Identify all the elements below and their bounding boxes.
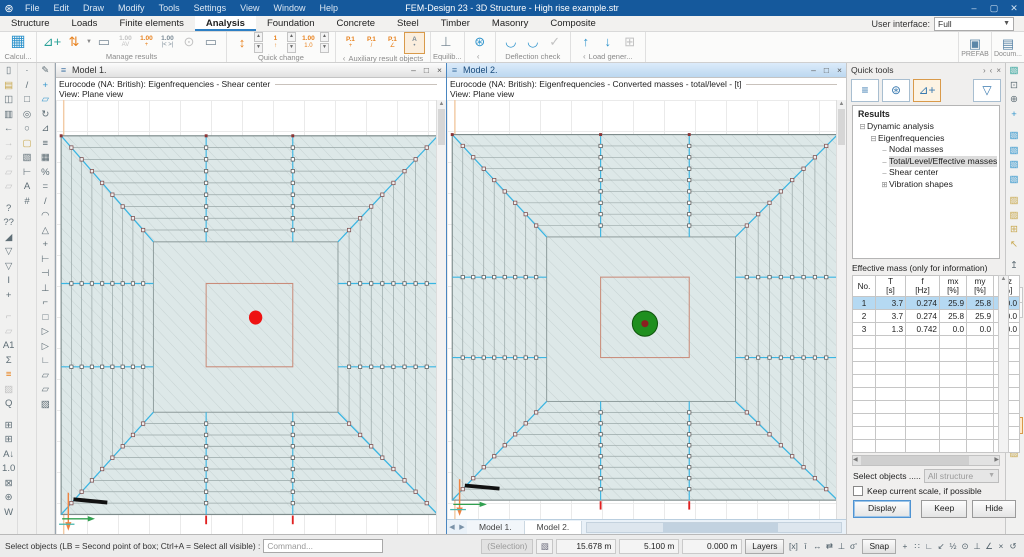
cell: 25.9 <box>940 297 967 310</box>
rel-coord-icon[interactable]: ī <box>799 539 811 553</box>
model-window-1: ≡Model 1.–□×Eurocode (NA: British): Eige… <box>55 62 447 535</box>
sort-az-icon[interactable]: A↓ <box>1 448 16 463</box>
rotate-icon[interactable]: ↻ <box>38 108 53 123</box>
ribbon-group: ◡◡✓Deflection check <box>496 31 571 62</box>
minimize-button[interactable]: – <box>964 0 984 16</box>
cell: 0.742 <box>906 323 940 336</box>
cell: 3.7 <box>876 310 906 323</box>
fit-view-icon[interactable]: ⊡ <box>1007 79 1022 94</box>
word-export-icon[interactable]: W <box>1 506 16 521</box>
qc-updown-spinner[interactable]: ▲▼ <box>254 32 263 53</box>
menu-settings[interactable]: Settings <box>187 0 234 16</box>
menu-edit[interactable]: Edit <box>47 0 77 16</box>
model-tab-bar: ◀▶Model 1.Model 2. <box>447 519 846 534</box>
find-extreme-icon[interactable]: ⊙ <box>179 32 199 52</box>
what-is-icon[interactable]: ?? <box>1 216 16 231</box>
ribbon-group-label: Equilib... <box>431 52 464 62</box>
prefab-button[interactable]: ▣PREFAB <box>958 31 991 62</box>
result-point-section-icon[interactable]: P.1∠ <box>383 33 402 53</box>
line-icon[interactable]: / <box>19 79 34 94</box>
table-add-icon[interactable]: ⊞ <box>1 433 16 448</box>
results-title: Results <box>858 109 997 121</box>
tab-masonry[interactable]: Masonry <box>481 16 539 31</box>
cell: 25.9 <box>967 310 994 323</box>
panel-close-button[interactable]: × <box>996 66 1001 75</box>
hatch-obj-icon[interactable]: ▨ <box>38 398 53 413</box>
effective-mass-table-wrap: No.T[s]f[Hz]mx[%]my[%]mz[%]13.70.27425.9… <box>852 275 1000 453</box>
snap-button[interactable]: Snap <box>862 539 896 554</box>
deflection-ok-icon[interactable]: ✓ <box>545 32 565 52</box>
filter-solid-icon[interactable]: ◢ <box>1 231 16 246</box>
model-window-controls: –□× <box>807 65 846 75</box>
generate-down-icon[interactable]: ↓ <box>598 32 618 52</box>
cell: 25.8 <box>940 310 967 323</box>
snap-ortho-icon[interactable]: ∟ <box>923 539 935 553</box>
qc-shape-spinner[interactable]: ▲▼ <box>287 32 296 53</box>
qc-scale-icon[interactable]: 1.001.0 <box>299 33 318 53</box>
select-pick-icon[interactable]: ↖ <box>1007 238 1022 253</box>
cell: 0.274 <box>906 297 940 310</box>
pan-icon[interactable]: + <box>1007 108 1022 123</box>
cell: 3 <box>853 323 876 336</box>
qt-new-result-button[interactable]: ⊿+ <box>913 79 941 102</box>
table-row[interactable]: 13.70.27425.925.80.0 <box>853 297 1020 310</box>
ribbon-group: P.1+P.1/P.1∠A•‹Auxiliary result objects <box>336 31 431 62</box>
ribbon-group-label: ‹Load gener... <box>571 52 645 62</box>
table-hscrollbar[interactable]: ◀▶ <box>852 455 1000 466</box>
quick-tools-buttons: ≡⊛⊿+▽ <box>847 77 1005 105</box>
tab-concrete[interactable]: Concrete <box>325 16 386 31</box>
extend-right-icon[interactable]: ⊣ <box>38 267 53 282</box>
workplane-cube-icon[interactable]: ▧ <box>536 539 553 554</box>
chevron-down-icon: ▼ <box>988 470 995 482</box>
ribbon-group: ⊿+⇅▼▭1.00AV1.00+1.00|< >|⊙▭Manage result… <box>37 31 227 62</box>
qc-shape-icon[interactable]: 1↑ <box>266 33 285 53</box>
quick-tools-panel: Quick tools ›‹× ≡⊛⊿+▽ Results ⊟Dynamic a… <box>846 62 1006 535</box>
table-row-empty <box>853 414 1020 427</box>
select-objects-label: Select objects ..... <box>853 471 921 481</box>
snap-center-icon[interactable]: ⊙ <box>959 539 971 553</box>
ribbon-group-label: ‹Auxiliary result objects <box>336 54 430 64</box>
table-row-empty <box>853 336 1020 349</box>
cell: 3.7 <box>876 297 906 310</box>
ribbon: ▦Calcul...⊿+⇅▼▭1.00AV1.00+1.00|< >|⊙▭Man… <box>0 31 1024 63</box>
horizontal-lock-icon[interactable]: ↔ <box>811 539 823 553</box>
status-bar: Select objects (LB = Second point of box… <box>0 534 1024 557</box>
user-interface-label: User interface: <box>871 19 930 29</box>
ribbon-tabs: StructureLoadsFinite elementsAnalysisFou… <box>0 16 607 31</box>
snap-icons: +∷∟↙½⊙⊥∠×↺ <box>899 539 1019 553</box>
model-titlebar[interactable]: ≡Model 1.–□× <box>56 63 446 78</box>
scale-fit-icon[interactable]: 1.00|< >| <box>158 32 177 52</box>
zoom-window-icon[interactable]: ⊕ <box>1007 93 1022 108</box>
scale-plus-icon[interactable]: 1.00+ <box>137 32 156 52</box>
copy-icon[interactable]: ▱ <box>38 93 53 108</box>
view-description: View: Plane view <box>59 89 123 99</box>
storey-up-icon[interactable]: ↥ <box>1007 259 1022 274</box>
face-edit-icon[interactable]: □ <box>38 311 53 326</box>
result-description: Eurocode (NA: British): Eigenfrequencies… <box>450 79 741 89</box>
model-window-title: Model 1. <box>71 65 107 75</box>
tab-loads[interactable]: Loads <box>61 16 109 31</box>
table-row-empty <box>853 362 1020 375</box>
model-tab-model1[interactable]: Model 1. <box>467 521 525 534</box>
table-row[interactable]: 23.70.27425.825.90.0 <box>853 310 1020 323</box>
table-scrollbar[interactable]: ▲ <box>998 275 1009 453</box>
ribbon-group-label: Manage results <box>37 52 226 62</box>
win-maximize-button[interactable]: □ <box>820 65 833 75</box>
tree-connector: – <box>880 156 889 168</box>
view-top-icon[interactable]: ▧ <box>1007 129 1022 144</box>
documentation-icon: ▤ <box>1002 36 1014 51</box>
layers-button[interactable]: Layers <box>745 539 784 554</box>
command-prompt-label: Select objects (LB = Second point of box… <box>5 541 260 551</box>
display-button[interactable]: Display <box>853 500 911 518</box>
group-collapse-icon[interactable]: ‹ <box>583 52 586 61</box>
ribbon-group: ⊥Equilib... <box>431 31 465 62</box>
abs-coord-icon[interactable]: [x] <box>787 539 799 553</box>
left-toolbar-col2: ·/□◎○▢▧⊢A# <box>18 62 36 535</box>
documentation-button[interactable]: ▤Docum... <box>991 31 1024 62</box>
result-point-new-icon[interactable]: P.1+ <box>341 33 360 53</box>
table-view-icon[interactable]: ⊞ <box>1 419 16 434</box>
ribbon-group: ⊛‹ <box>465 31 496 62</box>
text-icon[interactable]: A <box>19 180 34 195</box>
column-header-f: f[Hz] <box>906 276 940 297</box>
table-row[interactable]: 31.30.7420.00.00.0 <box>853 323 1020 336</box>
quick-help-icon[interactable]: ? <box>1 202 16 217</box>
hatch-tool-icon[interactable]: ▨ <box>1 383 16 398</box>
left-toolbar: ▯▤◫▥←→▱▱▱???◢▽▽I+⌐▱A1Σ≡▨Q⊞⊞A↓1.0⊠⊛W ·/□◎… <box>0 62 56 535</box>
snap-node-icon[interactable]: + <box>899 539 911 553</box>
view-description: View: Plane view <box>450 89 514 99</box>
ribbon-group: ▦Calcul... <box>0 31 37 62</box>
tree-item-nodal-masses[interactable]: –Nodal masses <box>858 144 997 156</box>
qt-settings-button[interactable]: ⊛ <box>882 79 910 102</box>
horizontal-scrollbar[interactable] <box>586 522 842 533</box>
filter-funnel-icon[interactable]: ▽ <box>1 245 16 260</box>
palette-icon[interactable]: ▧ <box>1007 64 1022 79</box>
table-row-empty <box>853 388 1020 401</box>
window-title: FEM-Design 23 - 3D Structure - High rise… <box>405 3 619 13</box>
win-close-button[interactable]: × <box>433 65 446 75</box>
menu-modify[interactable]: Modify <box>111 0 152 16</box>
cell: 0.274 <box>906 310 940 323</box>
calculate-icon[interactable]: ▦ <box>5 32 31 52</box>
properties-icon[interactable]: % <box>38 166 53 181</box>
layers-color-icon[interactable]: ≡ <box>1 368 16 383</box>
generate-up-icon[interactable]: ↑ <box>576 32 596 52</box>
display-options-icon[interactable]: ▭ <box>94 32 114 52</box>
snap-midpoint-icon[interactable]: ½ <box>947 539 959 553</box>
save-icon[interactable]: ◫ <box>1 93 16 108</box>
user-interface-area: User interface: Full ▼ <box>871 16 1024 31</box>
open-icon[interactable]: ▤ <box>1 79 16 94</box>
maximize-button[interactable]: ▢ <box>984 0 1004 16</box>
raster-icon[interactable]: # <box>19 195 34 210</box>
options-gear-icon[interactable]: ⊛ <box>1 491 16 506</box>
offset-icon[interactable]: ≡ <box>38 137 53 152</box>
model-canvas[interactable]: ▲ <box>447 100 846 519</box>
win-minimize-button[interactable]: – <box>807 65 820 75</box>
model-canvas[interactable]: ▲ <box>56 100 446 534</box>
user-interface-value: Full <box>938 18 952 30</box>
paste-obj-icon[interactable]: ▱ <box>38 383 53 398</box>
menu-file[interactable]: File <box>18 0 47 16</box>
tab-timber[interactable]: Timber <box>430 16 481 31</box>
model-status-lines: Eurocode (NA: British): Eigenfrequencies… <box>56 78 446 100</box>
intersect-icon[interactable]: + <box>38 238 53 253</box>
decimals-icon[interactable]: 1.0 <box>1 462 16 477</box>
tab-analysis[interactable]: Analysis <box>195 16 256 31</box>
vertical-scrollbar[interactable]: ▲ <box>436 100 446 534</box>
snap-off-icon[interactable]: × <box>995 539 1007 553</box>
group-collapse-icon[interactable]: ‹ <box>477 52 480 61</box>
circle-radius-icon[interactable]: ◎ <box>19 108 34 123</box>
ribbon-tab-row: StructureLoadsFinite elementsAnalysisFou… <box>0 16 1024 32</box>
left-toolbar-col1: ▯▤◫▥←→▱▱▱???◢▽▽I+⌐▱A1Σ≡▨Q⊞⊞A↓1.0⊠⊛W <box>0 62 18 535</box>
tab-composite[interactable]: Composite <box>539 16 606 31</box>
settings-gear-icon[interactable]: ⊛ <box>470 32 490 52</box>
win-maximize-button[interactable]: □ <box>420 65 433 75</box>
results-tree: ⊟Dynamic analysis⊟Eigenfrequencies–Nodal… <box>858 121 997 190</box>
filter-funnel-2-icon[interactable]: ▽ <box>1 260 16 275</box>
tab-scroll-left-icon[interactable]: ◀ <box>447 523 457 531</box>
menu-view[interactable]: View <box>233 0 266 16</box>
window-menu-icon[interactable]: ≡ <box>447 65 462 75</box>
move-icon[interactable]: + <box>38 79 53 94</box>
model-window-controls: –□× <box>407 65 446 75</box>
quick-tools-head-controls: ›‹× <box>983 66 1001 75</box>
ribbon-group-label: Quick change <box>227 53 335 63</box>
group-collapse-icon[interactable]: ‹ <box>343 54 346 63</box>
selection-indicator: (Selection) <box>481 539 533 554</box>
table-row-empty <box>853 427 1020 440</box>
tree-item-total-level-effective-masses[interactable]: –Total/Level/Effective masses <box>858 156 997 168</box>
left-toolbar-col3: ✎+▱↻⊿≡▦%=/◠△+⊢⊣⊥⌐□▷▷∟▱▱▨ <box>37 62 55 535</box>
qt-list-button[interactable]: ≡ <box>851 79 879 102</box>
titlebar-controls: –▢✕ <box>964 0 1024 16</box>
fill-region-icon[interactable]: ▢ <box>19 137 34 152</box>
tree-connector: – <box>880 167 889 179</box>
copy-props-1-icon[interactable]: ▱ <box>1 151 16 166</box>
deflection-beam-icon[interactable]: ◡ <box>523 32 543 52</box>
extend-left-icon[interactable]: ⊢ <box>38 253 53 268</box>
close-button[interactable]: ✕ <box>1004 0 1024 16</box>
tab-foundation[interactable]: Foundation <box>256 16 326 31</box>
tab-finite-elements[interactable]: Finite elements <box>108 16 194 31</box>
view-side-icon[interactable]: ▧ <box>1007 158 1022 173</box>
cell: 0.0 <box>940 323 967 336</box>
rectangle-icon[interactable]: □ <box>19 93 34 108</box>
tab-structure[interactable]: Structure <box>0 16 61 31</box>
column-header-my: my[%] <box>967 276 994 297</box>
column-header-t: T[s] <box>876 276 906 297</box>
trim-icon[interactable]: ⊥ <box>38 282 53 297</box>
keep-button[interactable]: Keep <box>921 500 967 518</box>
circle-icon[interactable]: ○ <box>19 122 34 137</box>
ribbon-group: ↑↓⊞‹Load gener... <box>571 31 646 62</box>
cell: 0.0 <box>967 323 994 336</box>
column-header-mx: mx[%] <box>940 276 967 297</box>
user-interface-select[interactable]: Full ▼ <box>934 17 1014 31</box>
model-window-2: ≡Model 2.–□×Eurocode (NA: British): Eige… <box>446 62 847 535</box>
tree-item-dynamic-analysis[interactable]: ⊟Dynamic analysis <box>858 121 997 133</box>
qc-scale-spinner[interactable]: ▲▼ <box>320 32 329 53</box>
panel-collapse-button[interactable]: ‹ <box>990 66 993 75</box>
column-header-no: No. <box>853 276 876 297</box>
new-result-icon[interactable]: ⊿+ <box>42 32 62 52</box>
effective-mass-table[interactable]: No.T[s]f[Hz]mx[%]my[%]mz[%]13.70.27425.9… <box>852 275 1020 453</box>
tree-item-vibration-shapes[interactable]: ⊞Vibration shapes <box>858 179 997 191</box>
menu-bar: FileEditDrawModifyToolsSettingsViewWindo… <box>18 0 345 16</box>
ribbon-group: ↕▲▼1↑▲▼1.001.0▲▼Quick change <box>227 31 336 62</box>
tab-scroll-right-icon[interactable]: ▶ <box>457 523 467 531</box>
ribbon-group-label: Deflection check <box>496 52 570 62</box>
vertical-scrollbar[interactable]: ▲ <box>836 100 846 519</box>
keep-scale-checkbox[interactable] <box>853 486 863 496</box>
snap-diagonal-icon[interactable]: ↙ <box>935 539 947 553</box>
menu-help[interactable]: Help <box>312 0 345 16</box>
effective-mass-title: Effective mass (only for information) <box>847 259 1005 275</box>
cell: 2 <box>853 310 876 323</box>
win-minimize-button[interactable]: – <box>407 65 420 75</box>
ribbon-group-label: Calcul... <box>0 52 36 62</box>
angle-lock-icon[interactable]: σ' <box>847 539 859 553</box>
print-icon[interactable]: ▥ <box>1 108 16 123</box>
scale-av-icon[interactable]: 1.00AV <box>116 32 135 52</box>
dimension-icon[interactable]: ⊢ <box>19 166 34 181</box>
window-menu-icon[interactable]: ≡ <box>56 65 71 75</box>
new-icon[interactable]: ▯ <box>1 64 16 79</box>
copy-obj-icon[interactable]: ▱ <box>38 369 53 384</box>
poly-a-icon[interactable]: ▷ <box>38 325 53 340</box>
tab-steel[interactable]: Steel <box>386 16 430 31</box>
undo-icon[interactable]: ← <box>1 122 16 137</box>
snap-grid-icon[interactable]: ∷ <box>911 539 923 553</box>
copy-props-3-icon[interactable]: ▱ <box>1 180 16 195</box>
prefab-icon: ▣ <box>969 36 981 51</box>
tree-expander-icon[interactable]: ⊟ <box>858 121 867 133</box>
lock-icon[interactable]: ⊠ <box>1 477 16 492</box>
redo-icon[interactable]: → <box>1 137 16 152</box>
snap-cycle-icon[interactable]: ↺ <box>1007 539 1019 553</box>
ribbon-groups: ▦Calcul...⊿+⇅▼▭1.00AV1.00+1.00|< >|⊙▭Man… <box>0 31 646 62</box>
select-objects-dropdown[interactable]: All structure ▼ <box>924 469 999 483</box>
menu-draw[interactable]: Draw <box>76 0 111 16</box>
deflection-slab-icon[interactable]: ◡ <box>501 32 521 52</box>
select-add-icon[interactable]: ⊞ <box>1007 223 1022 238</box>
perpendicular-lock-icon[interactable]: ⊥ <box>835 539 847 553</box>
poly-b-icon[interactable]: ▷ <box>38 340 53 355</box>
results-tree-box: Results ⊟Dynamic analysis⊟Eigenfrequenci… <box>852 105 1000 259</box>
tree-item-shear-center[interactable]: –Shear center <box>858 167 997 179</box>
fillet-icon[interactable]: △ <box>38 224 53 239</box>
shade-wire-icon[interactable]: ▨ <box>1007 194 1022 209</box>
copy-props-2-icon[interactable]: ▱ <box>1 166 16 181</box>
table-row-empty <box>853 440 1020 453</box>
cell: 25.8 <box>967 297 994 310</box>
panel-undock-button[interactable]: › <box>983 66 986 75</box>
shade-solid-icon[interactable]: ▨ <box>1007 209 1022 224</box>
text-cursor-icon[interactable]: I <box>1 274 16 289</box>
coordinate-y: 5.100 m <box>619 539 679 554</box>
command-input[interactable]: Command... <box>263 539 383 553</box>
crosshair-icon[interactable]: + <box>1 289 16 304</box>
coordinate-x: 15.678 m <box>556 539 616 554</box>
snap-perpendicular-icon[interactable]: ⊥ <box>971 539 983 553</box>
menu-tools[interactable]: Tools <box>152 0 187 16</box>
tree-expander-icon[interactable]: ⊞ <box>880 179 889 191</box>
result-point-diagram-icon[interactable]: P.1/ <box>362 33 381 53</box>
mirror-icon[interactable]: ⊿ <box>38 122 53 137</box>
make-equal-icon[interactable]: = <box>38 180 53 195</box>
table-row-empty <box>853 375 1020 388</box>
solid-box-icon[interactable]: ▧ <box>19 151 34 166</box>
quick-tools-title: Quick tools <box>851 65 894 75</box>
keep-scale-label: Keep current scale, if possible <box>867 486 982 496</box>
modify-icon[interactable]: ✎ <box>38 64 53 79</box>
equilibrium-icon[interactable]: ⊥ <box>436 32 456 52</box>
result-updown-icon[interactable]: ⇅ <box>64 32 84 52</box>
view-front-icon[interactable]: ▧ <box>1007 144 1022 159</box>
model-window-title: Model 2. <box>462 65 498 75</box>
view-iso-icon[interactable]: ▧ <box>1007 173 1022 188</box>
cell: 1.3 <box>876 323 906 336</box>
zoom-q-icon[interactable]: Q <box>1 397 16 412</box>
model-titlebar[interactable]: ≡Model 2.–□× <box>447 63 846 78</box>
tree-connector: – <box>880 144 889 156</box>
parallel-lock-icon[interactable]: ⇄ <box>823 539 835 553</box>
region-tool-icon[interactable]: ▱ <box>1 325 16 340</box>
result-updown-dropdown[interactable]: ▼ <box>86 39 92 45</box>
hide-button[interactable]: Hide <box>972 500 1016 518</box>
text-a1-icon[interactable]: A1 <box>1 339 16 354</box>
divide-icon[interactable]: / <box>38 195 53 210</box>
chamfer-icon[interactable]: ⌐ <box>38 296 53 311</box>
clip-plane-icon[interactable]: ⌐ <box>1 310 16 325</box>
app-logo-icon: ⊛ <box>0 2 18 15</box>
table-row-empty <box>853 349 1020 362</box>
sum-sigma-icon[interactable]: Σ <box>1 354 16 369</box>
ribbon-right: ▣PREFAB▤Docum... <box>958 31 1024 62</box>
snap-angle-icon[interactable]: ∠ <box>983 539 995 553</box>
win-close-button[interactable]: × <box>833 65 846 75</box>
cell: 1 <box>853 297 876 310</box>
point-icon[interactable]: · <box>19 64 34 79</box>
qt-filter-button[interactable]: ▽ <box>973 79 1001 102</box>
coordinate-z: 0.000 m <box>682 539 742 554</box>
generate-copy-icon[interactable]: ⊞ <box>620 32 640 52</box>
chevron-down-icon: ▼ <box>1003 18 1010 30</box>
array-icon[interactable]: ▦ <box>38 151 53 166</box>
annotation-icon[interactable]: A• <box>404 32 425 54</box>
mode-icons: [x]ī↔⇄⊥σ' <box>787 539 859 553</box>
table-row-empty <box>853 401 1020 414</box>
select-objects-value: All structure <box>928 470 973 482</box>
result-description: Eurocode (NA: British): Eigenfrequencies… <box>59 79 270 89</box>
menu-window[interactable]: Window <box>266 0 312 16</box>
poly-corner-icon[interactable]: ∟ <box>38 354 53 369</box>
app-titlebar: ⊛ FileEditDrawModifyToolsSettingsViewWin… <box>0 0 1024 16</box>
model-tab-model2[interactable]: Model 2. <box>525 521 583 534</box>
ribbon-group-label: ‹ <box>465 52 495 62</box>
tree-expander-icon[interactable]: ⊟ <box>869 133 878 145</box>
qc-updown-icon[interactable]: ↕ <box>232 33 252 53</box>
tree-item-eigenfrequencies[interactable]: ⊟Eigenfrequencies <box>858 133 997 145</box>
arc-modify-icon[interactable]: ◠ <box>38 209 53 224</box>
section-frame-icon[interactable]: ▭ <box>201 32 221 52</box>
